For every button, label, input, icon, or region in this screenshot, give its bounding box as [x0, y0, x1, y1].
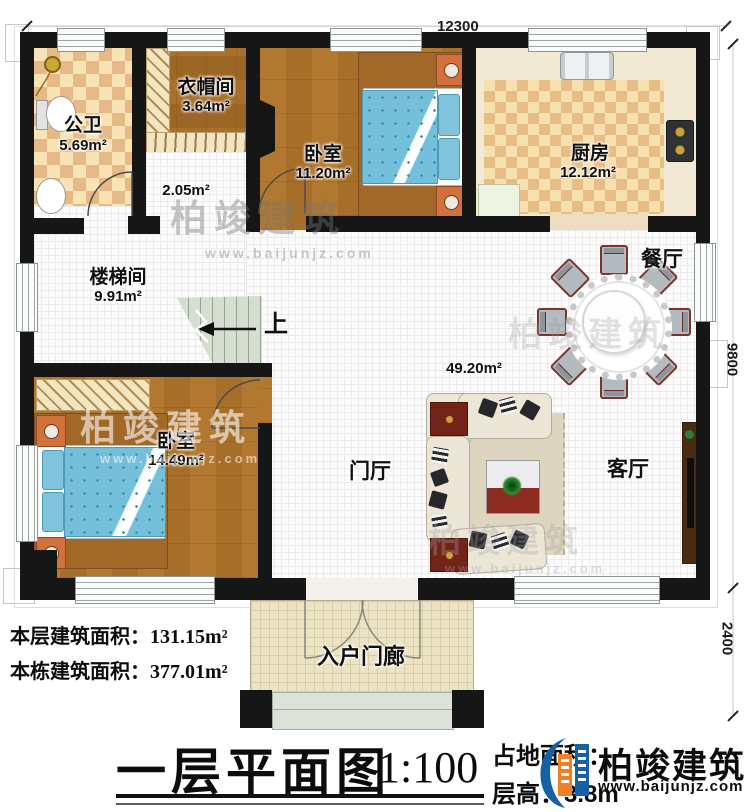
room-area-toilet: 5.69m²: [59, 138, 107, 153]
room-area-cloak: 3.64m²: [182, 99, 230, 114]
floor-area-value: 131.15m²: [150, 626, 228, 648]
stairs-up-label: 上: [264, 313, 288, 337]
room-label-toilet: 公卫: [64, 116, 102, 135]
dimension-right: 9800: [724, 335, 741, 385]
room-label-kitchen: 厨房: [571, 144, 609, 163]
brand-logo-icon: [534, 734, 596, 810]
brand-logo-url: www.baijunjz.com: [598, 778, 743, 795]
great-room-area: 49.20m²: [446, 361, 502, 376]
building-area-value: 377.01m²: [150, 661, 228, 683]
room-label-living: 客厅: [607, 459, 649, 480]
porch-label: 入户门廊: [317, 646, 405, 668]
room-area-bedroom1: 11.20m²: [295, 166, 350, 181]
room-label-bedroom2: 卧室: [157, 432, 195, 451]
room-area-stairhall: 9.91m²: [94, 289, 142, 304]
room-label-dining: 餐厅: [641, 249, 683, 270]
plan-scale: 1:100: [378, 742, 478, 793]
room-label-stairhall: 楼梯间: [89, 268, 146, 287]
title-underline: [116, 794, 484, 805]
room-label-bedroom1: 卧室: [304, 145, 342, 164]
room-area-bedroom2: 14.49m²: [148, 453, 204, 468]
room-label-cloak: 衣帽间: [177, 78, 234, 97]
floor-area-line: 本层建筑面积：131.15m²: [10, 620, 228, 649]
floor-area-label: 本层建筑面积：: [10, 626, 150, 648]
building-area-line: 本栋建筑面积：377.01m²: [10, 655, 228, 684]
room-area-hallway: 2.05m²: [162, 183, 210, 198]
building-area-label: 本栋建筑面积：: [10, 661, 150, 683]
room-label-foyer: 门厅: [349, 461, 391, 482]
annotation-layer: [0, 0, 750, 812]
dimension-right-lower: 2400: [719, 615, 736, 663]
floor-plan: 公卫 5.69m² 衣帽间 3.64m² 卧室 11.20m² 厨房 12.12…: [0, 0, 750, 812]
room-area-kitchen: 12.12m²: [560, 165, 616, 180]
dimension-top: 12300: [437, 18, 479, 35]
